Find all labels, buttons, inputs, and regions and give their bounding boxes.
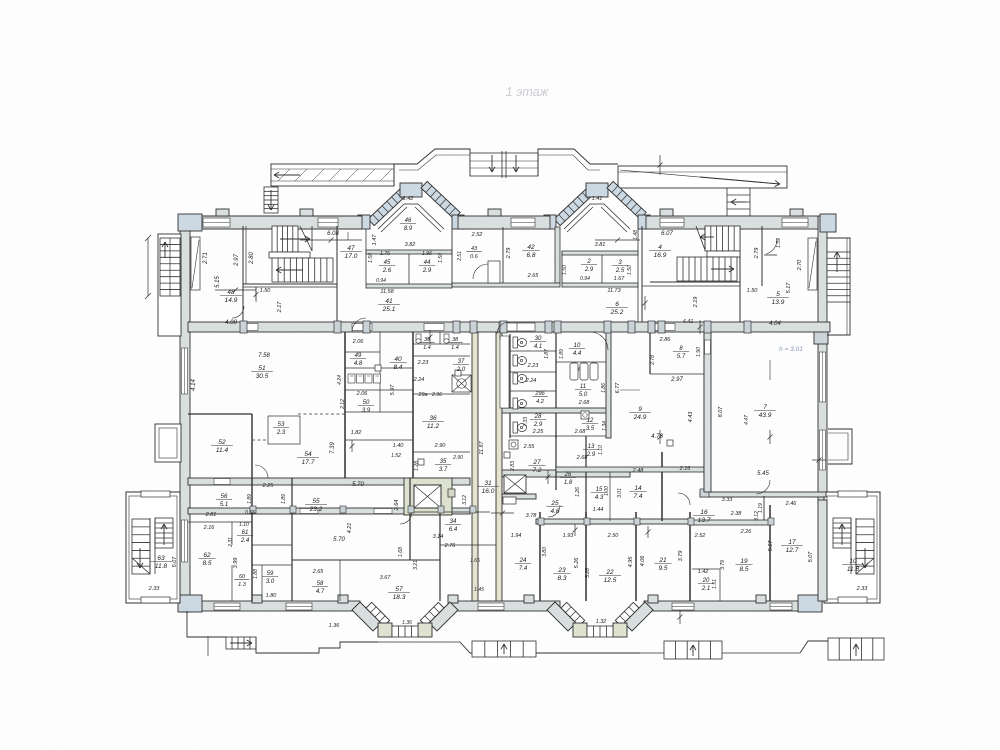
svg-text:7.2: 7.2 — [532, 467, 541, 474]
svg-text:49: 49 — [355, 353, 362, 359]
svg-text:1.80: 1.80 — [266, 593, 278, 599]
svg-text:2.68: 2.68 — [578, 400, 591, 406]
svg-text:35: 35 — [440, 459, 447, 465]
svg-text:1.59: 1.59 — [776, 238, 782, 248]
svg-text:1.10: 1.10 — [598, 445, 604, 455]
svg-text:0.6: 0.6 — [470, 254, 479, 260]
svg-text:4.43: 4.43 — [688, 411, 694, 423]
svg-text:1.93: 1.93 — [563, 533, 575, 539]
svg-text:2.76: 2.76 — [444, 543, 457, 549]
svg-text:3.99: 3.99 — [233, 558, 239, 569]
svg-text:4.2: 4.2 — [536, 399, 544, 405]
svg-text:62: 62 — [203, 552, 211, 559]
svg-text:1.41: 1.41 — [592, 196, 603, 202]
svg-text:4.76: 4.76 — [651, 434, 663, 440]
svg-text:1.10: 1.10 — [239, 522, 249, 528]
svg-text:2.46: 2.46 — [785, 501, 798, 507]
svg-text:5.07: 5.07 — [808, 551, 814, 563]
svg-text:24.9: 24.9 — [633, 414, 647, 421]
svg-text:5.70: 5.70 — [333, 537, 345, 543]
svg-text:2.23: 2.23 — [417, 360, 430, 366]
svg-text:1.52: 1.52 — [391, 453, 401, 459]
svg-text:13.7: 13.7 — [698, 517, 711, 524]
svg-text:43.9: 43.9 — [759, 412, 772, 419]
svg-text:2.17: 2.17 — [277, 301, 283, 314]
svg-text:52: 52 — [218, 439, 226, 446]
svg-text:2.6: 2.6 — [382, 268, 392, 274]
svg-text:5.97: 5.97 — [390, 384, 396, 396]
svg-text:1.28: 1.28 — [414, 461, 420, 471]
svg-text:13: 13 — [588, 444, 595, 450]
svg-text:3.0: 3.0 — [266, 579, 275, 585]
svg-text:8.3: 8.3 — [557, 575, 566, 582]
svg-text:1.50: 1.50 — [368, 253, 374, 263]
svg-text:2.25: 2.25 — [532, 429, 545, 435]
svg-text:10: 10 — [574, 343, 581, 349]
svg-text:30.5: 30.5 — [256, 373, 269, 380]
svg-text:4.6: 4.6 — [550, 508, 559, 515]
svg-text:16.0: 16.0 — [482, 488, 495, 495]
svg-text:2.83: 2.83 — [510, 461, 516, 472]
svg-text:1.36: 1.36 — [402, 620, 412, 626]
svg-text:5.17: 5.17 — [786, 282, 792, 294]
svg-text:h = 3.01: h = 3.01 — [779, 346, 803, 353]
svg-text:2.80: 2.80 — [249, 252, 255, 265]
svg-text:23.2: 23.2 — [309, 506, 323, 513]
svg-text:2.90: 2.90 — [452, 455, 463, 461]
svg-text:2.26: 2.26 — [740, 529, 753, 535]
svg-text:1.48: 1.48 — [633, 230, 639, 240]
svg-text:10: 10 — [849, 558, 857, 565]
svg-text:1.89: 1.89 — [281, 494, 287, 504]
svg-text:7.58: 7.58 — [258, 353, 270, 359]
svg-text:29б: 29б — [534, 391, 545, 397]
svg-text:2.52: 2.52 — [471, 232, 483, 238]
svg-text:48: 48 — [227, 289, 235, 296]
svg-text:2.50: 2.50 — [607, 533, 620, 539]
svg-text:1.8: 1.8 — [564, 480, 573, 486]
svg-text:22: 22 — [605, 569, 614, 576]
svg-text:59: 59 — [267, 571, 274, 577]
svg-text:7.4: 7.4 — [519, 566, 528, 572]
svg-text:8.5: 8.5 — [202, 560, 211, 567]
svg-text:61: 61 — [242, 530, 249, 536]
svg-text:4.95: 4.95 — [628, 556, 634, 568]
svg-text:19: 19 — [740, 558, 748, 565]
svg-text:1.00: 1.00 — [604, 486, 610, 496]
svg-text:23: 23 — [557, 567, 566, 574]
svg-text:12.7: 12.7 — [786, 547, 799, 554]
svg-text:2.4: 2.4 — [240, 538, 250, 544]
svg-text:9: 9 — [638, 406, 642, 413]
svg-text:2.68: 2.68 — [576, 455, 589, 461]
svg-text:4.14: 4.14 — [191, 379, 197, 391]
svg-text:2.9: 2.9 — [422, 268, 432, 274]
svg-text:2.79: 2.79 — [506, 248, 512, 260]
svg-text:3.7: 3.7 — [439, 467, 448, 473]
svg-text:2.51: 2.51 — [457, 251, 463, 262]
svg-text:2: 2 — [586, 259, 591, 265]
svg-text:11.8: 11.8 — [847, 566, 860, 573]
svg-text:4.4: 4.4 — [573, 351, 582, 357]
svg-text:3.78: 3.78 — [526, 513, 538, 519]
svg-text:2.33: 2.33 — [856, 586, 869, 592]
svg-text:1.47: 1.47 — [372, 234, 378, 246]
svg-text:2.1: 2.1 — [701, 586, 710, 592]
svg-text:54: 54 — [304, 451, 312, 458]
svg-text:6.8: 6.8 — [526, 252, 535, 259]
svg-text:1.40: 1.40 — [393, 443, 405, 449]
svg-text:4.7: 4.7 — [316, 589, 325, 595]
svg-text:1.4: 1.4 — [423, 345, 431, 351]
svg-text:1.76: 1.76 — [380, 251, 390, 257]
svg-text:1.50: 1.50 — [747, 288, 759, 294]
svg-text:1.68: 1.68 — [398, 547, 404, 557]
svg-text:3.5: 3.5 — [586, 426, 595, 432]
svg-text:1.32: 1.32 — [596, 619, 607, 625]
svg-text:1.36: 1.36 — [329, 623, 341, 629]
svg-text:40: 40 — [394, 356, 402, 363]
svg-text:4.8: 4.8 — [354, 361, 363, 367]
svg-text:3.80: 3.80 — [542, 547, 548, 557]
svg-text:29а: 29а — [417, 392, 427, 398]
svg-text:36: 36 — [429, 415, 437, 422]
svg-text:28: 28 — [534, 414, 542, 420]
svg-text:11.4: 11.4 — [216, 447, 229, 454]
svg-text:41: 41 — [385, 298, 393, 305]
svg-text:2.24: 2.24 — [525, 378, 537, 384]
svg-text:5.17: 5.17 — [768, 540, 774, 552]
svg-text:3.14: 3.14 — [433, 534, 444, 540]
svg-text:1.50: 1.50 — [260, 288, 272, 294]
svg-text:5.45: 5.45 — [757, 471, 769, 477]
svg-text:1.44: 1.44 — [593, 507, 604, 513]
svg-text:5.15: 5.15 — [215, 276, 221, 288]
svg-text:3.67: 3.67 — [380, 575, 392, 581]
svg-text:44: 44 — [424, 260, 431, 266]
svg-text:1.86: 1.86 — [601, 383, 607, 393]
svg-text:4.21: 4.21 — [347, 523, 353, 534]
svg-text:1.4: 1.4 — [451, 345, 459, 351]
svg-text:53: 53 — [278, 422, 285, 428]
svg-text:58: 58 — [317, 581, 324, 587]
svg-text:16: 16 — [700, 509, 708, 516]
svg-text:46: 46 — [405, 218, 412, 224]
svg-text:12: 12 — [587, 418, 594, 424]
svg-text:6.4: 6.4 — [449, 527, 458, 533]
svg-text:6.08: 6.08 — [327, 231, 339, 237]
svg-text:2.65: 2.65 — [312, 569, 325, 575]
svg-text:14.9: 14.9 — [225, 297, 238, 304]
svg-text:7.39: 7.39 — [330, 442, 336, 454]
svg-text:2.9: 2.9 — [533, 422, 543, 428]
svg-text:2.52: 2.52 — [694, 533, 706, 539]
svg-text:1 этаж: 1 этаж — [506, 85, 550, 99]
svg-text:17: 17 — [788, 539, 796, 546]
svg-text:5.26: 5.26 — [574, 557, 580, 569]
svg-text:2.31: 2.31 — [228, 537, 234, 548]
svg-text:2.25: 2.25 — [262, 483, 275, 489]
svg-text:39: 39 — [424, 337, 430, 343]
svg-text:8.9: 8.9 — [404, 226, 413, 232]
svg-text:4: 4 — [658, 244, 662, 251]
svg-text:8.07: 8.07 — [718, 406, 724, 418]
svg-text:11.87: 11.87 — [479, 440, 485, 454]
svg-text:2.16: 2.16 — [203, 525, 216, 531]
svg-text:7: 7 — [763, 404, 767, 411]
svg-text:51: 51 — [258, 365, 266, 372]
svg-text:1.45: 1.45 — [474, 587, 484, 593]
svg-text:7.33: 7.33 — [523, 417, 529, 427]
svg-text:5: 5 — [776, 291, 780, 298]
svg-text:30: 30 — [535, 336, 542, 342]
svg-text:25: 25 — [550, 500, 559, 507]
svg-text:37: 37 — [458, 359, 465, 365]
svg-text:9.5: 9.5 — [658, 565, 667, 572]
svg-text:1.50: 1.50 — [562, 265, 568, 275]
svg-text:1.34: 1.34 — [602, 421, 608, 431]
svg-text:2.86: 2.86 — [659, 337, 672, 343]
svg-text:2.90: 2.90 — [434, 443, 447, 449]
svg-text:1.67: 1.67 — [614, 276, 626, 282]
svg-text:4.41: 4.41 — [683, 319, 694, 325]
svg-text:7.4: 7.4 — [633, 493, 642, 500]
svg-text:2.06: 2.06 — [356, 391, 369, 397]
svg-text:42: 42 — [527, 244, 535, 251]
svg-text:2.0: 2.0 — [456, 367, 466, 373]
svg-text:2.79: 2.79 — [754, 248, 760, 260]
svg-text:38: 38 — [452, 337, 459, 343]
svg-text:11.2: 11.2 — [427, 423, 440, 430]
svg-text:1.82: 1.82 — [351, 430, 362, 436]
svg-text:3.9: 3.9 — [362, 408, 371, 414]
svg-text:24: 24 — [519, 558, 527, 564]
svg-text:5.70: 5.70 — [352, 482, 364, 488]
svg-text:2.55: 2.55 — [523, 444, 536, 450]
svg-text:3.79: 3.79 — [678, 551, 684, 562]
svg-text:3.01: 3.01 — [617, 488, 623, 498]
svg-text:5.07: 5.07 — [172, 556, 178, 568]
svg-text:21: 21 — [658, 557, 667, 564]
svg-text:4.24: 4.24 — [337, 375, 343, 385]
svg-text:1.90: 1.90 — [696, 347, 702, 357]
svg-text:3.33: 3.33 — [722, 497, 734, 503]
svg-text:43: 43 — [471, 246, 478, 252]
svg-text:0.94: 0.94 — [580, 276, 590, 282]
svg-text:11.8: 11.8 — [155, 563, 168, 570]
svg-text:34: 34 — [450, 519, 457, 525]
svg-text:4.08: 4.08 — [225, 320, 237, 326]
svg-text:1.94: 1.94 — [511, 533, 522, 539]
svg-text:12.5: 12.5 — [604, 577, 617, 584]
svg-text:2.06: 2.06 — [352, 339, 365, 345]
svg-text:0.94: 0.94 — [376, 278, 386, 284]
svg-text:1.51: 1.51 — [712, 579, 718, 589]
svg-text:5.1: 5.1 — [220, 502, 228, 508]
svg-text:4.47: 4.47 — [744, 415, 750, 425]
svg-text:1.42: 1.42 — [698, 569, 709, 575]
svg-text:60: 60 — [239, 574, 246, 580]
svg-text:2.16: 2.16 — [679, 466, 692, 472]
svg-text:2.48: 2.48 — [632, 468, 645, 474]
svg-text:31: 31 — [484, 480, 492, 487]
svg-text:1.3: 1.3 — [238, 582, 247, 588]
svg-text:1.88: 1.88 — [253, 569, 259, 579]
svg-text:27: 27 — [532, 459, 541, 466]
svg-text:3.81: 3.81 — [595, 242, 606, 248]
svg-text:2.78: 2.78 — [650, 355, 656, 366]
svg-text:1.50: 1.50 — [627, 265, 633, 275]
svg-text:17.0: 17.0 — [345, 253, 358, 260]
svg-text:3.82: 3.82 — [405, 242, 416, 248]
svg-text:3.79: 3.79 — [720, 560, 726, 570]
svg-text:6.07: 6.07 — [661, 231, 673, 237]
svg-text:0.55: 0.55 — [245, 510, 255, 516]
svg-text:1.89: 1.89 — [247, 494, 253, 504]
svg-text:1.42: 1.42 — [403, 196, 414, 202]
svg-text:13.9: 13.9 — [772, 299, 785, 306]
svg-text:2.38: 2.38 — [730, 511, 743, 517]
svg-text:4.04: 4.04 — [769, 321, 781, 327]
svg-text:11: 11 — [580, 384, 586, 390]
svg-text:26: 26 — [564, 472, 572, 478]
svg-text:57: 57 — [395, 586, 403, 593]
svg-text:8.4: 8.4 — [393, 364, 402, 371]
svg-text:5.0: 5.0 — [579, 392, 588, 398]
svg-text:56: 56 — [221, 494, 228, 500]
svg-text:2.3: 2.3 — [276, 430, 286, 436]
svg-text:1.87: 1.87 — [544, 349, 550, 359]
svg-text:4.1: 4.1 — [534, 344, 542, 350]
svg-text:45: 45 — [384, 260, 391, 266]
svg-text:1.96: 1.96 — [422, 251, 432, 257]
svg-text:50: 50 — [363, 400, 370, 406]
svg-text:4.3: 4.3 — [595, 495, 604, 501]
svg-text:2.70: 2.70 — [797, 259, 803, 272]
svg-text:63: 63 — [157, 555, 165, 562]
svg-text:5.28: 5.28 — [585, 568, 591, 578]
svg-text:11.73: 11.73 — [607, 288, 621, 294]
svg-text:25.1: 25.1 — [382, 306, 396, 313]
svg-text:17.7: 17.7 — [302, 459, 315, 466]
svg-text:6: 6 — [615, 301, 619, 308]
svg-text:55: 55 — [312, 498, 320, 505]
svg-text:2.81: 2.81 — [205, 512, 217, 518]
svg-text:2.19: 2.19 — [693, 297, 699, 309]
svg-text:1.19: 1.19 — [758, 503, 764, 513]
svg-text:20: 20 — [702, 578, 710, 584]
svg-text:2.68: 2.68 — [574, 429, 587, 435]
svg-text:2.5: 2.5 — [615, 268, 625, 274]
svg-text:15: 15 — [596, 487, 603, 493]
svg-text:16.9: 16.9 — [654, 252, 667, 259]
svg-text:1.65: 1.65 — [470, 558, 480, 564]
svg-text:1.50: 1.50 — [438, 253, 444, 263]
svg-text:4.06: 4.06 — [640, 555, 646, 567]
svg-text:6.77: 6.77 — [615, 382, 621, 394]
svg-text:2.65: 2.65 — [527, 273, 540, 279]
svg-text:11.58: 11.58 — [380, 289, 394, 295]
svg-text:47: 47 — [347, 245, 355, 252]
svg-text:2.23: 2.23 — [527, 363, 540, 369]
svg-text:25.2: 25.2 — [610, 309, 624, 316]
svg-text:1.26: 1.26 — [575, 487, 581, 497]
svg-text:3.21: 3.21 — [413, 560, 419, 570]
svg-text:2.97: 2.97 — [670, 377, 683, 383]
svg-text:2.9: 2.9 — [584, 267, 594, 273]
svg-text:1.89: 1.89 — [559, 349, 565, 359]
svg-text:8.5: 8.5 — [739, 566, 748, 573]
svg-text:2.64: 2.64 — [394, 500, 400, 512]
svg-text:2.71: 2.71 — [203, 252, 209, 265]
svg-text:2.33: 2.33 — [148, 586, 161, 592]
svg-text:2.12: 2.12 — [340, 399, 346, 410]
svg-text:2.97: 2.97 — [234, 254, 240, 267]
svg-text:2.24: 2.24 — [413, 377, 425, 383]
svg-text:2.96: 2.96 — [431, 392, 442, 398]
svg-text:14: 14 — [634, 485, 642, 492]
svg-text:3.12: 3.12 — [462, 495, 468, 505]
svg-text:5.7: 5.7 — [677, 354, 686, 360]
svg-text:18.3: 18.3 — [393, 594, 406, 601]
